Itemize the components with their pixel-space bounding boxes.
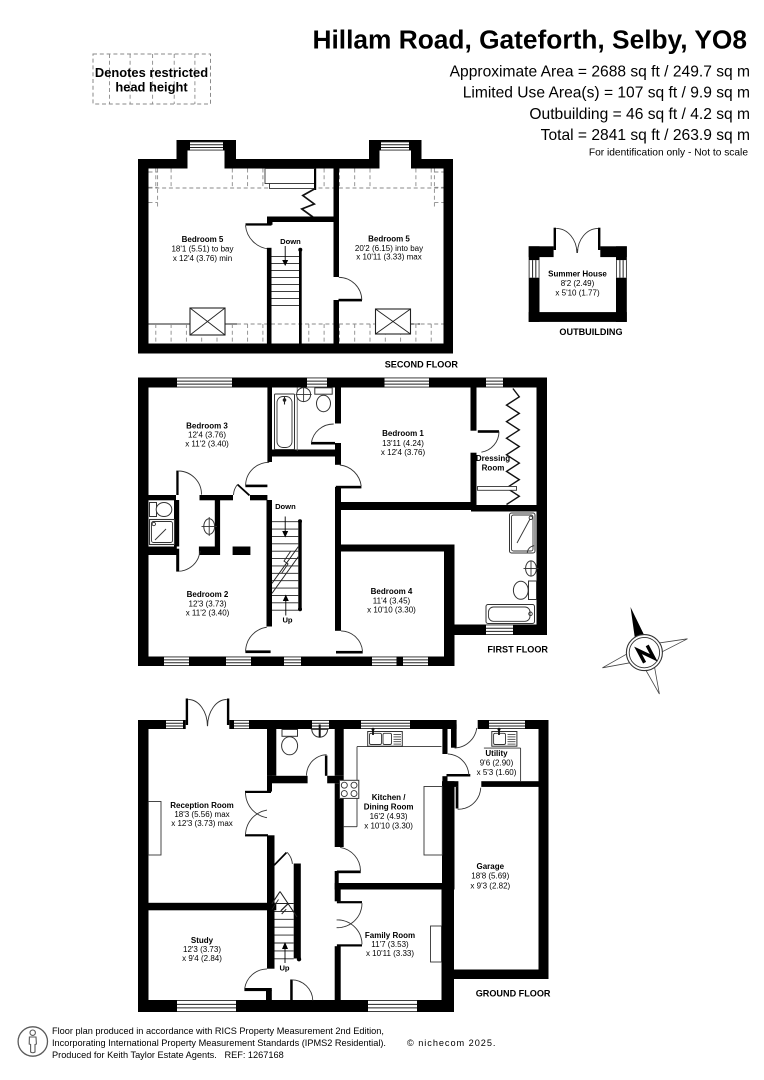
- svg-text:x 5'3 (1.60): x 5'3 (1.60): [477, 768, 517, 777]
- svg-text:18'8 (5.69): 18'8 (5.69): [471, 872, 509, 881]
- svg-text:Summer House: Summer House: [548, 270, 607, 279]
- svg-text:Down: Down: [275, 502, 296, 511]
- svg-text:x 12'4 (3.76): x 12'4 (3.76): [381, 448, 426, 457]
- svg-text:18'3 (5.56) max: 18'3 (5.56) max: [174, 810, 229, 819]
- svg-text:Up: Up: [282, 616, 292, 625]
- svg-text:Approximate Area = 2688 sq ft: Approximate Area = 2688 sq ft / 249.7 sq…: [450, 64, 750, 81]
- svg-text:Dressing: Dressing: [476, 454, 510, 463]
- svg-text:Study: Study: [191, 936, 214, 945]
- svg-text:9'6 (2.90): 9'6 (2.90): [480, 759, 514, 768]
- svg-text:Produced for Keith Taylor Esta: Produced for Keith Taylor Estate Agents.…: [52, 1050, 284, 1060]
- svg-text:11'7 (3.53): 11'7 (3.53): [371, 940, 409, 949]
- svg-text:head height: head height: [115, 80, 188, 95]
- svg-text:GROUND FLOOR: GROUND FLOOR: [476, 989, 551, 999]
- svg-text:Incorporating International Pr: Incorporating International Property Mea…: [52, 1038, 386, 1048]
- svg-text:12'3 (3.73): 12'3 (3.73): [183, 945, 221, 954]
- svg-text:Down: Down: [280, 237, 301, 246]
- svg-text:x 5'10 (1.77): x 5'10 (1.77): [555, 289, 600, 298]
- svg-text:Family Room: Family Room: [365, 931, 415, 940]
- svg-text:OUTBUILDING: OUTBUILDING: [559, 327, 622, 337]
- svg-text:x 10'10 (3.30): x 10'10 (3.30): [364, 822, 413, 831]
- svg-text:x 12'3 (3.73) max: x 12'3 (3.73) max: [171, 819, 233, 828]
- svg-text:Bedroom 4: Bedroom 4: [371, 587, 413, 596]
- svg-text:Total = 2841 sq ft / 263.9 sq: Total = 2841 sq ft / 263.9 sq m: [541, 127, 750, 144]
- svg-text:For identification only - Not: For identification only - Not to scale: [589, 148, 748, 159]
- svg-text:x 10'11 (3.33) max: x 10'11 (3.33) max: [356, 253, 421, 262]
- svg-text:Reception Room: Reception Room: [170, 801, 234, 810]
- svg-text:FIRST FLOOR: FIRST FLOOR: [487, 645, 548, 655]
- svg-text:x 11'2 (3.40): x 11'2 (3.40): [186, 609, 230, 618]
- svg-text:Kitchen /: Kitchen /: [372, 793, 407, 802]
- svg-text:Bedroom 3: Bedroom 3: [186, 422, 228, 431]
- svg-text:x 10'10 (3.30): x 10'10 (3.30): [367, 606, 416, 615]
- svg-text:Floor plan produced in accorda: Floor plan produced in accordance with R…: [52, 1026, 384, 1036]
- svg-text:Denotes restricted: Denotes restricted: [95, 65, 208, 80]
- svg-text:Dining Room: Dining Room: [364, 803, 414, 812]
- svg-text:18'1 (5.51) to bay: 18'1 (5.51) to bay: [171, 245, 233, 254]
- svg-text:11'4 (3.45): 11'4 (3.45): [373, 597, 411, 606]
- svg-text:x 9'3 (2.82): x 9'3 (2.82): [470, 882, 510, 891]
- svg-text:x 9'4 (2.84): x 9'4 (2.84): [182, 954, 222, 963]
- svg-text:Outbuilding = 46 sq ft / 4.2 s: Outbuilding = 46 sq ft / 4.2 sq m: [529, 106, 750, 123]
- svg-text:Bedroom 5: Bedroom 5: [368, 235, 410, 244]
- svg-text:Bedroom 1: Bedroom 1: [382, 429, 424, 438]
- svg-text:© nichecom 2025.: © nichecom 2025.: [407, 1038, 496, 1048]
- svg-text:13'11 (4.24): 13'11 (4.24): [382, 439, 424, 448]
- svg-text:12'3 (3.73): 12'3 (3.73): [189, 600, 227, 609]
- svg-text:Utility: Utility: [485, 749, 508, 758]
- svg-text:Garage: Garage: [477, 862, 505, 871]
- svg-text:Hillam Road, Gateforth, Selby,: Hillam Road, Gateforth, Selby, YO8: [313, 25, 748, 55]
- svg-text:x 11'2 (3.40): x 11'2 (3.40): [185, 440, 229, 449]
- svg-text:16'2 (4.93): 16'2 (4.93): [370, 812, 408, 821]
- svg-text:8'2 (2.49): 8'2 (2.49): [561, 279, 595, 288]
- svg-text:x 10'11 (3.33): x 10'11 (3.33): [366, 949, 414, 958]
- svg-text:Up: Up: [279, 964, 289, 973]
- svg-text:Bedroom 5: Bedroom 5: [182, 235, 224, 244]
- svg-text:SECOND FLOOR: SECOND FLOOR: [385, 359, 459, 369]
- svg-text:12'4 (3.76): 12'4 (3.76): [188, 431, 226, 440]
- svg-text:Bedroom 2: Bedroom 2: [187, 590, 229, 599]
- svg-text:x 12'4 (3.76) min: x 12'4 (3.76) min: [173, 254, 232, 263]
- svg-text:Room: Room: [482, 464, 505, 473]
- svg-text:Limited Use Area(s) = 107 sq f: Limited Use Area(s) = 107 sq ft / 9.9 sq…: [463, 85, 750, 102]
